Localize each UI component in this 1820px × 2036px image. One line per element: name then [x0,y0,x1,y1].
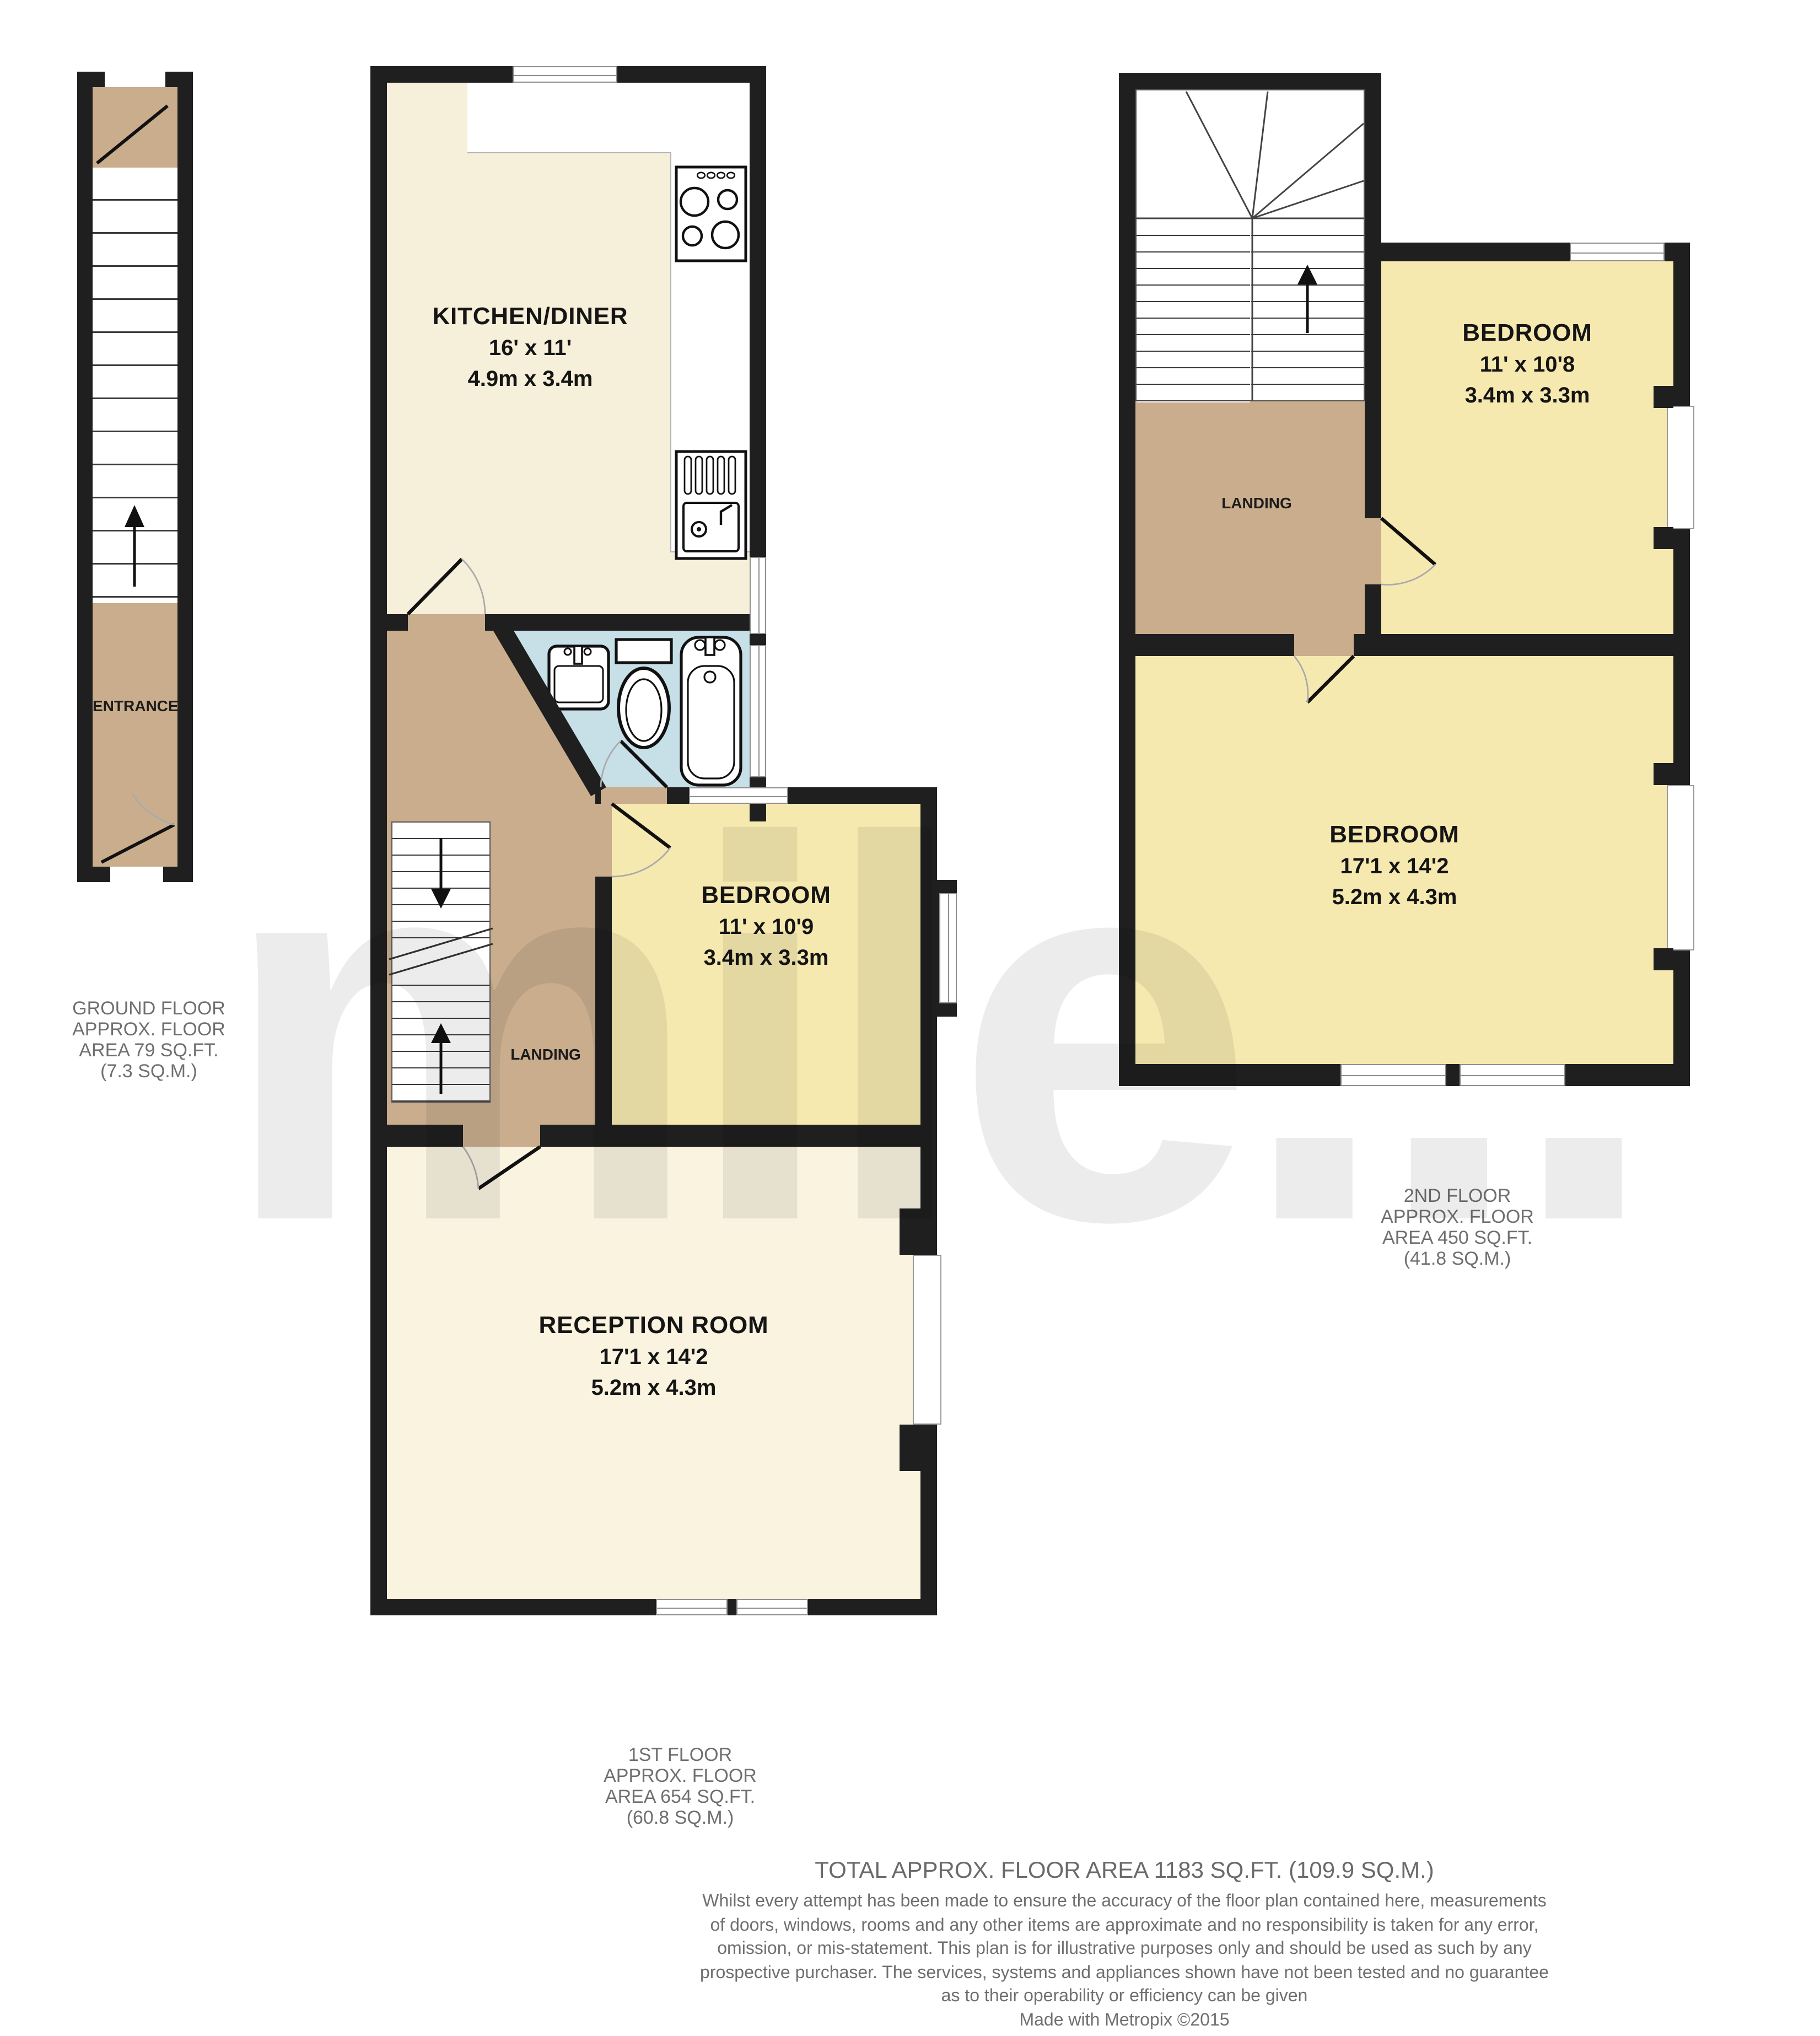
wall [370,1125,463,1147]
second-floor-area-label: 2ND FLOOR APPROX. FLOOR AREA 450 SQ.FT. … [1347,1185,1568,1269]
bedroom-side-window [939,893,957,1003]
reception-window [656,1599,728,1615]
ground-floor-area-label: GROUND FLOOR APPROX. FLOOR AREA 79 SQ.FT… [39,998,259,1082]
wall [1119,73,1381,89]
toilet-icon [613,637,675,764]
total-area-text: TOTAL APPROX. FLOOR AREA 1183 SQ.FT. (10… [573,1858,1676,1884]
wall [1365,261,1381,518]
wall [728,1599,736,1615]
wall [177,72,193,882]
wall [595,787,601,804]
wall [1119,634,1294,656]
chimney-notch [900,1208,920,1255]
first-floor-area-label: 1ST FLOOR APPROX. FLOOR AREA 654 SQ.FT. … [570,1744,790,1828]
floorplan-page: ENTRANCE GROUND FLOOR APPROX. FLOOR AREA… [0,0,1820,2035]
reception-window [736,1599,808,1615]
staircase-2nd [1135,89,1365,401]
kitchen-window-side [750,557,766,634]
kitchen-sink-icon [675,450,747,566]
kitchen-label: KITCHEN/DINER 16' x 11' 4.9m x 3.4m [387,270,674,425]
bedroom-large-window [1460,1064,1565,1086]
wall [750,83,766,557]
basin-icon [547,637,611,718]
bedroom-label: BEDROOM 11' x 10'9 3.4m x 3.3m [612,827,920,1025]
wall [595,877,612,1125]
wall [485,614,750,631]
reception-label: RECEPTION ROOM 17'1 x 14'2 5.2m x 4.3m [387,1268,920,1444]
landing2-label: LANDING [1196,494,1317,512]
entrance-floor [93,603,177,867]
bedroom-small-window [1570,243,1665,261]
doorway [408,614,485,631]
bedroom-small-label: BEDROOM 11' x 10'8 3.4m x 3.3m [1381,276,1673,452]
wall [1565,1064,1690,1086]
wall [788,787,937,804]
stove-icon [675,165,747,268]
entrance-label: ENTRANCE [93,697,177,715]
chimney-recess [1667,785,1694,950]
wall [808,1599,937,1615]
bedroom-large-label: BEDROOM 17'1 x 14'2 5.2m x 4.3m [1135,772,1654,959]
chimney-notch [1654,763,1673,785]
wall [1119,1064,1340,1086]
wall [1446,1064,1460,1086]
wall [77,72,93,882]
wall [540,1125,937,1147]
chimney-notch [1654,527,1673,549]
wall [370,66,387,1615]
entrance-top-floor [93,87,177,168]
wall [387,614,408,631]
doorway [463,1125,540,1147]
kitchen-window [513,66,617,83]
landing2-floor [1135,401,1365,634]
wall [1381,243,1570,261]
credit-text: Made with Metropix ©2015 [380,2008,1820,2032]
wall [617,66,766,83]
wall [667,787,689,804]
wall [750,634,766,645]
bedroom-large-window [1340,1064,1446,1086]
bathtub-icon [679,633,743,795]
wall [1119,73,1135,1086]
doorway [601,787,667,804]
wall [370,1599,656,1615]
wall [163,867,193,882]
wall [77,867,110,882]
doorway [595,804,612,877]
entrance-staircase [93,168,177,603]
bathroom-window [750,645,766,777]
bedroom-window [689,787,788,804]
wall [1354,634,1690,656]
staircase [391,821,491,1103]
disclaimer-text: Whilst every attempt has been made to en… [380,1890,1820,2032]
wall [1365,584,1381,634]
wall [370,66,513,83]
wall [1365,73,1381,261]
chimney-notch [1654,948,1673,970]
doorway [1365,518,1381,584]
doorway [1294,634,1354,656]
landing-label: LANDING [491,1045,601,1063]
